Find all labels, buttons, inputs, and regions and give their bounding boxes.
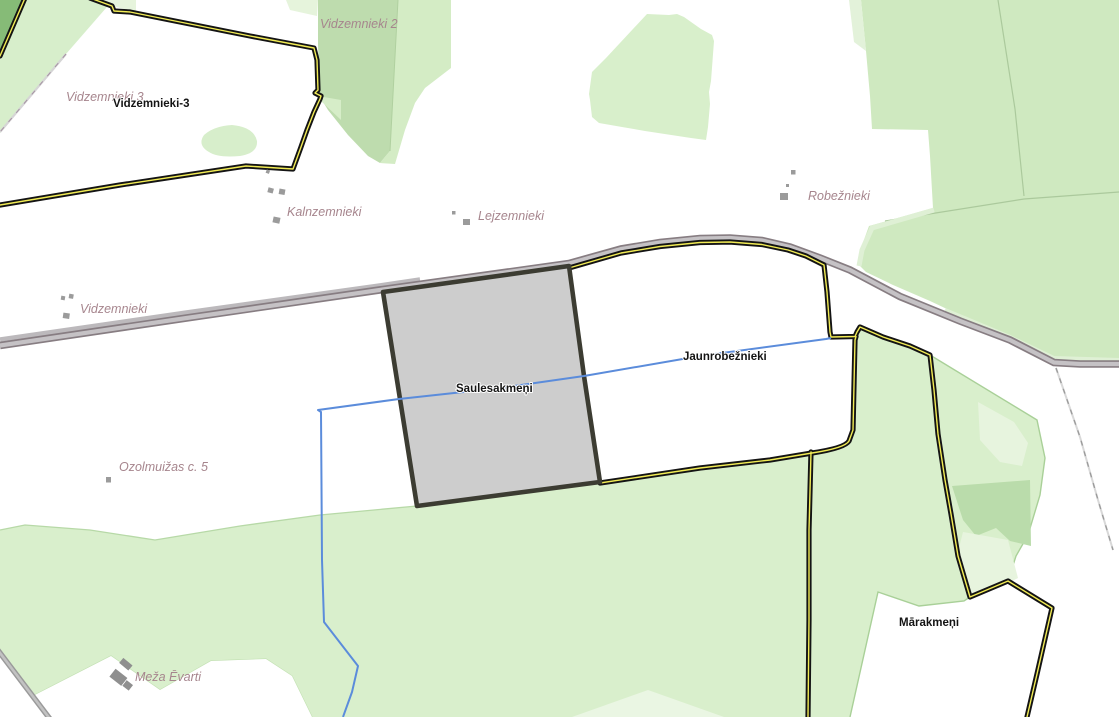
svg-text:Vidzemnieki: Vidzemnieki <box>80 302 148 316</box>
svg-text:Robežnieki: Robežnieki <box>808 189 871 203</box>
svg-text:Jaunrobežnieki: Jaunrobežnieki <box>683 351 767 363</box>
svg-text:Saulesakmeņi: Saulesakmeņi <box>456 383 533 395</box>
svg-text:Vidzemnieki-3: Vidzemnieki-3 <box>113 98 190 110</box>
svg-text:Lejzemnieki: Lejzemnieki <box>478 209 545 223</box>
svg-text:Vidzemnieki 2: Vidzemnieki 2 <box>320 17 398 31</box>
svg-text:Meža Ēvarti: Meža Ēvarti <box>135 670 202 684</box>
svg-text:Kalnzemnieki: Kalnzemnieki <box>287 205 363 219</box>
svg-text:Ozolmuižas c. 5: Ozolmuižas c. 5 <box>119 460 208 474</box>
svg-text:Mārakmeņi: Mārakmeņi <box>899 617 959 629</box>
